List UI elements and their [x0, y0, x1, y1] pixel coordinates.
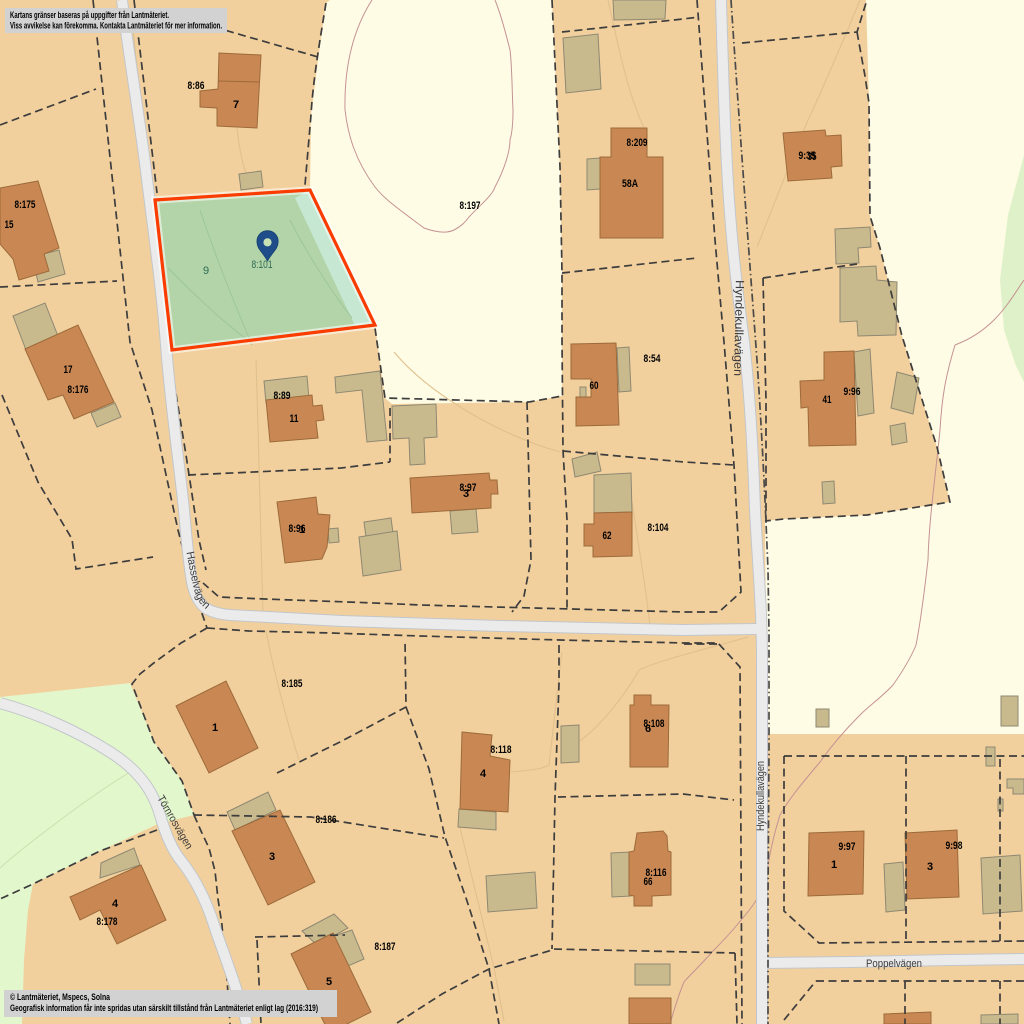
svg-text:Hyndekullavägen: Hyndekullavägen [755, 761, 767, 831]
svg-text:9:96: 9:96 [844, 386, 861, 398]
svg-text:41: 41 [823, 394, 832, 406]
svg-text:Poppelvägen: Poppelvägen [866, 958, 922, 970]
svg-text:1: 1 [299, 524, 305, 536]
svg-text:8:104: 8:104 [648, 522, 670, 534]
svg-text:4: 4 [480, 768, 487, 780]
svg-text:Kartans gränser baseras på upp: Kartans gränser baseras på uppgifter frå… [10, 10, 169, 21]
svg-text:11: 11 [290, 413, 299, 425]
svg-text:17: 17 [64, 364, 73, 376]
svg-text:8:186: 8:186 [316, 814, 337, 826]
svg-text:8:209: 8:209 [627, 137, 648, 149]
svg-text:8:185: 8:185 [282, 678, 303, 690]
svg-text:8:176: 8:176 [68, 384, 89, 396]
svg-text:Geografisk information får int: Geografisk information får inte spridas … [10, 1003, 318, 1013]
svg-text:8:178: 8:178 [97, 916, 118, 928]
svg-text:8:197: 8:197 [460, 200, 481, 212]
svg-text:5: 5 [326, 976, 332, 988]
svg-text:9: 9 [203, 265, 209, 277]
svg-text:1: 1 [212, 722, 218, 734]
svg-text:3: 3 [927, 861, 933, 873]
svg-text:66: 66 [644, 876, 653, 888]
svg-text:35: 35 [808, 151, 817, 163]
svg-text:4: 4 [112, 898, 119, 910]
svg-text:58A: 58A [622, 178, 638, 190]
svg-text:8:187: 8:187 [375, 941, 396, 953]
svg-text:6: 6 [645, 723, 651, 735]
svg-text:7: 7 [233, 99, 239, 111]
svg-text:62: 62 [603, 530, 612, 542]
svg-text:Hyndekullavägen: Hyndekullavägen [731, 280, 747, 376]
svg-text:8:175: 8:175 [15, 199, 36, 211]
svg-text:Viss avvikelse kan förekomma.: Viss avvikelse kan förekomma. Kontakta L… [10, 21, 222, 32]
svg-text:8:89: 8:89 [274, 390, 291, 402]
svg-text:1: 1 [831, 859, 837, 871]
svg-text:9:98: 9:98 [946, 840, 963, 852]
svg-text:8:118: 8:118 [491, 744, 512, 756]
svg-text:15: 15 [5, 219, 14, 231]
svg-text:8:86: 8:86 [188, 80, 205, 92]
svg-text:9:97: 9:97 [839, 841, 856, 853]
svg-text:© Lantmäteriet, Mspecs, Solna: © Lantmäteriet, Mspecs, Solna [10, 992, 110, 1002]
svg-text:8:54: 8:54 [644, 353, 662, 365]
svg-text:60: 60 [590, 380, 599, 392]
svg-text:3: 3 [269, 851, 275, 863]
svg-text:3: 3 [463, 488, 469, 500]
svg-text:8:101: 8:101 [252, 259, 273, 271]
